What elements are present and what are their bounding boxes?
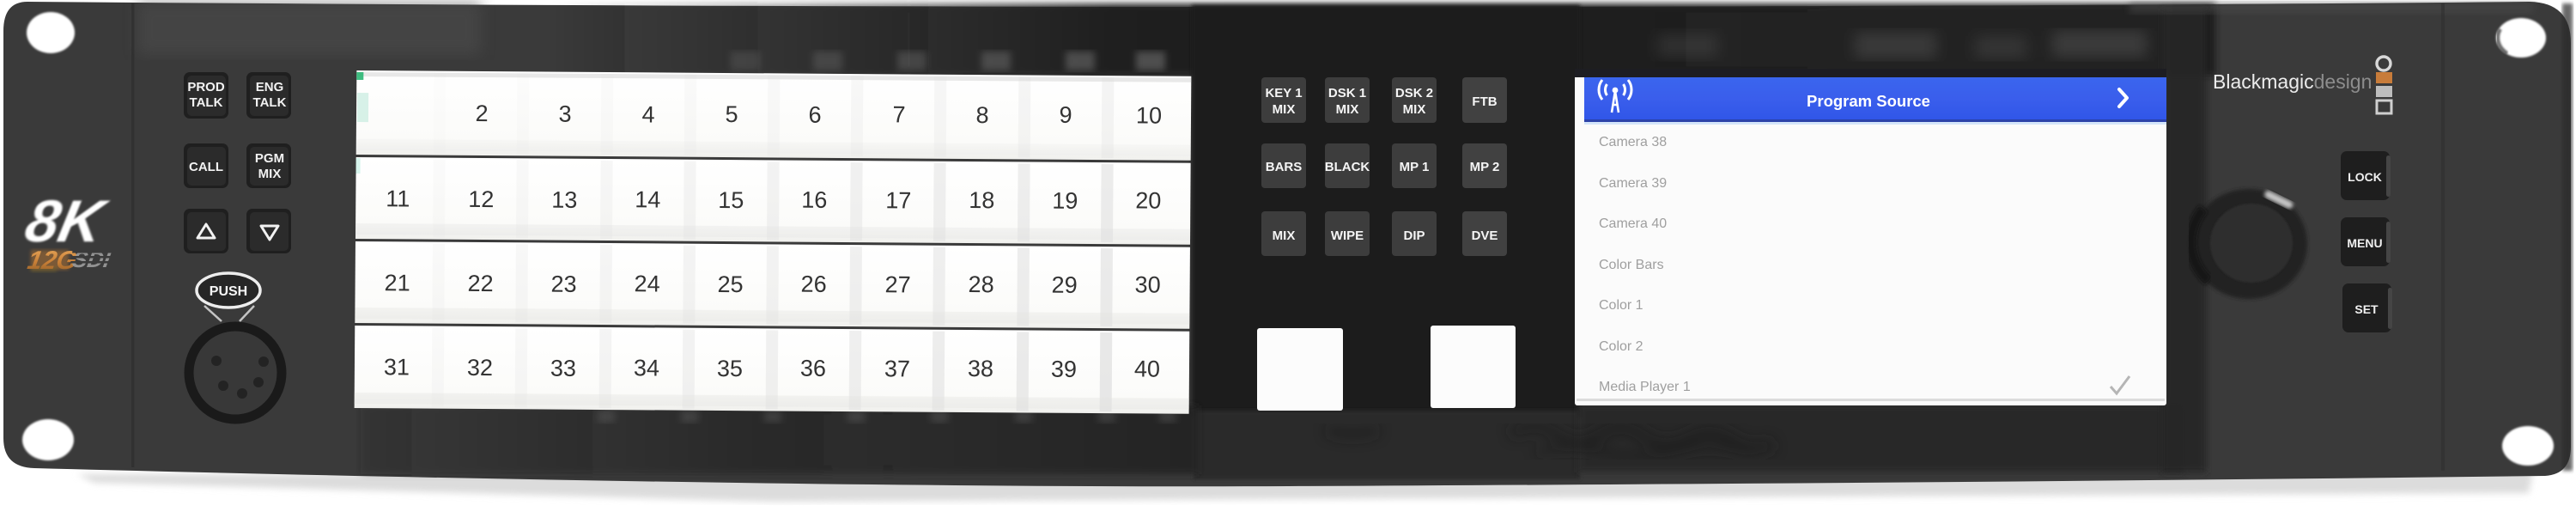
svg-text:21: 21 [385,270,410,295]
svg-text:5: 5 [725,101,738,127]
svg-text:40: 40 [1134,356,1160,381]
svg-text:Blackmagicdesign: Blackmagicdesign [2213,70,2372,93]
svg-text:MIX: MIX [1336,102,1359,117]
svg-text:Color Bars: Color Bars [1599,258,1664,272]
svg-text:WIPE: WIPE [1331,228,1364,243]
svg-text:3: 3 [558,101,571,127]
svg-text:8: 8 [975,102,988,128]
svg-text:36: 36 [800,356,826,381]
svg-text:DVE: DVE [1472,228,1498,243]
svg-text:MIX: MIX [1403,102,1426,117]
svg-text:BLACK: BLACK [1325,160,1370,174]
svg-text:35: 35 [717,356,743,381]
svg-text:38: 38 [968,356,993,381]
svg-text:MENU: MENU [2347,236,2382,250]
svg-text:28: 28 [969,271,994,297]
svg-text:10: 10 [1136,102,1162,128]
svg-text:18: 18 [969,187,994,213]
svg-text:2: 2 [475,101,488,126]
svg-text:Camera 38: Camera 38 [1599,135,1667,149]
svg-text:14: 14 [635,186,660,212]
svg-text:37: 37 [884,356,910,381]
svg-text:BARS: BARS [1266,160,1303,174]
svg-text:MP 1: MP 1 [1400,160,1430,174]
svg-text:9: 9 [1059,102,1072,128]
svg-text:TALK: TALK [190,95,223,110]
svg-text:PROD: PROD [187,80,225,94]
svg-text:24: 24 [635,271,660,296]
svg-text:26: 26 [801,271,827,297]
svg-text:31: 31 [384,354,410,380]
svg-text:33: 33 [550,356,576,381]
svg-text:15: 15 [718,187,744,213]
svg-text:17: 17 [885,187,911,213]
svg-text:Color 2: Color 2 [1599,339,1643,354]
svg-text:SDI: SDI [70,247,112,272]
svg-text:34: 34 [634,355,659,381]
svg-text:30: 30 [1135,271,1161,297]
svg-text:PGM: PGM [255,151,284,166]
svg-text:6: 6 [808,102,821,128]
svg-text:7: 7 [892,101,905,127]
svg-text:MIX: MIX [1273,102,1296,117]
svg-text:Camera 39: Camera 39 [1599,176,1667,191]
svg-text:32: 32 [467,355,493,381]
svg-text:Media Player 1: Media Player 1 [1599,380,1691,394]
svg-text:27: 27 [885,271,911,297]
svg-text:20: 20 [1135,187,1161,213]
svg-text:FTB: FTB [1472,94,1497,109]
svg-text:12: 12 [468,186,494,212]
svg-text:TALK: TALK [253,95,287,110]
svg-text:MIX: MIX [1273,228,1296,243]
svg-text:11: 11 [386,186,410,211]
svg-text:DIP: DIP [1403,228,1425,243]
svg-text:DSK 2: DSK 2 [1395,86,1433,101]
svg-text:25: 25 [718,271,744,297]
svg-text:22: 22 [468,271,494,296]
svg-text:ENG: ENG [256,80,284,94]
svg-text:KEY 1: KEY 1 [1265,86,1302,101]
svg-text:29: 29 [1052,272,1078,298]
svg-text:Color 1: Color 1 [1599,298,1643,313]
svg-text:4: 4 [641,101,654,127]
svg-text:PUSH: PUSH [210,284,247,299]
svg-text:SET: SET [2354,302,2379,316]
svg-text:CALL: CALL [189,160,223,174]
svg-text:13: 13 [551,187,577,213]
svg-text:23: 23 [551,271,577,297]
svg-text:19: 19 [1052,188,1078,214]
svg-text:16: 16 [801,187,827,213]
svg-text:MIX: MIX [258,167,282,181]
svg-text:MP 2: MP 2 [1470,160,1500,174]
svg-text:DSK 1: DSK 1 [1328,86,1366,101]
svg-text:Program Source: Program Source [1807,92,1930,110]
svg-text:Camera 40: Camera 40 [1599,216,1667,231]
svg-text:39: 39 [1051,356,1077,382]
svg-text:LOCK: LOCK [2348,170,2382,184]
